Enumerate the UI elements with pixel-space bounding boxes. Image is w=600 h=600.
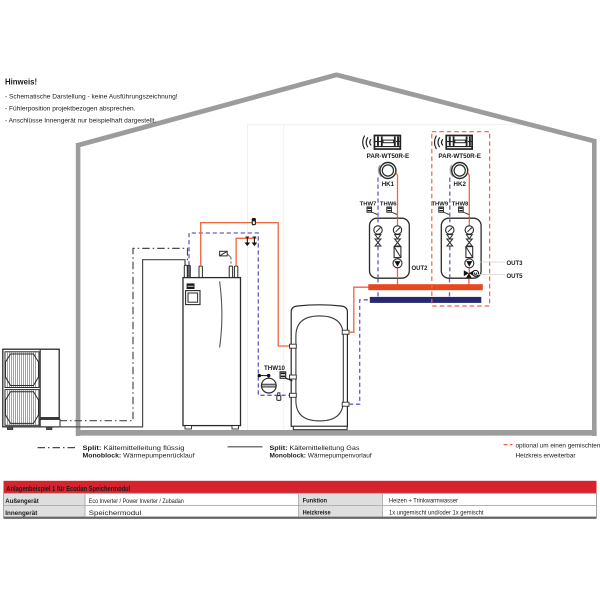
svg-text:Monoblock: Wärmepumpenrücklauf: Monoblock: Wärmepumpenrücklauf: [83, 452, 195, 459]
svg-text:Split: Kältemittelleitung Gas: Split: Kältemittelleitung Gas: [270, 445, 361, 452]
svg-text:HK1: HK1: [382, 181, 395, 188]
svg-text:THW8: THW8: [452, 201, 469, 207]
svg-text:Split: Kältemittelleitung flüs: Split: Kältemittelleitung flüssig: [83, 445, 185, 452]
svg-text:optional um einen gemischten: optional um einen gemischten: [516, 443, 600, 450]
svg-text:Funktion: Funktion: [303, 497, 328, 504]
svg-text:- Anschlüsse Innengerät nur be: - Anschlüsse Innengerät nur beispielhaft…: [5, 118, 157, 125]
svg-text:- Schematische Darstellung - k: - Schematische Darstellung - keine Ausfü…: [5, 94, 178, 101]
svg-text:Heizkreise: Heizkreise: [303, 510, 331, 517]
svg-text:PAR-WT50R-E: PAR-WT50R-E: [438, 153, 481, 160]
svg-text:Heizen + Trinkwarmwasser: Heizen + Trinkwarmwasser: [389, 497, 458, 504]
svg-text:THW7: THW7: [360, 201, 377, 207]
svg-text:THW10: THW10: [264, 365, 286, 372]
svg-text:Monoblock: Wärmepumpenvorlauf: Monoblock: Wärmepumpenvorlauf: [270, 452, 372, 459]
svg-text:PAR-WT50R-E: PAR-WT50R-E: [367, 153, 410, 160]
svg-text:M: M: [474, 271, 478, 276]
svg-text:HK2: HK2: [454, 181, 467, 188]
svg-text:1x ungemischt und/oder 1x gemi: 1x ungemischt und/oder 1x gemischt: [389, 510, 484, 517]
svg-text:OUT5: OUT5: [507, 274, 524, 280]
svg-text:- Fühlerposition projektbezoge: - Fühlerposition projektbezogen absprech…: [5, 106, 136, 113]
svg-text:THW6: THW6: [380, 201, 397, 207]
svg-text:Innengerät: Innengerät: [5, 510, 38, 517]
svg-text:Heizkreis erweiterbar: Heizkreis erweiterbar: [516, 452, 577, 459]
svg-text:THW9: THW9: [431, 201, 448, 207]
svg-text:OUT2: OUT2: [412, 266, 429, 272]
svg-text:OUT3: OUT3: [507, 261, 524, 267]
svg-text:Hinweis!: Hinweis!: [5, 78, 37, 87]
svg-text:Speichermodul: Speichermodul: [89, 510, 142, 517]
svg-text:Anlagenbeispiel 1 für Ecodan S: Anlagenbeispiel 1 für Ecodan Speichermod…: [6, 486, 130, 493]
svg-text:Außengerät: Außengerät: [5, 498, 39, 505]
svg-text:Eco Inverter / Power Inverter: Eco Inverter / Power Inverter / Zubadan: [89, 498, 184, 505]
